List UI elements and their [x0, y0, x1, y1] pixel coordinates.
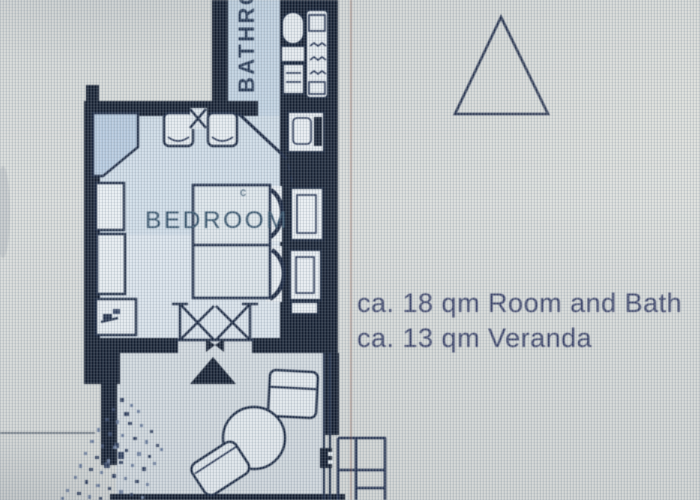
closet-upper [291, 188, 323, 240]
floor-plan-photo: BATHRO BEDROOM c ca. 18 qm Room and Bath… [0, 0, 700, 500]
seat-left [164, 113, 193, 146]
floor-plan-svg: BATHRO BEDROOM c ca. 18 qm Room and Bath… [0, 0, 700, 500]
sink-box [96, 299, 136, 335]
bedroom-label: BEDROOM [145, 207, 289, 234]
side-table-x-icon [190, 108, 207, 129]
washbasin-icon [288, 112, 324, 152]
window-grid-symbol [338, 438, 386, 500]
bottom-edge-wall [110, 494, 345, 500]
area-note-line2: ca. 13 qm Veranda [357, 323, 593, 353]
area-note-line1: ca. 18 qm Room and Bath [357, 288, 682, 318]
shelf-unit-upper [96, 183, 124, 230]
bathtub-icon [306, 10, 328, 98]
bathroom-label: BATHRO [234, 0, 259, 93]
bed [193, 185, 270, 298]
closet-lower [290, 250, 321, 300]
bottom-wall-right [252, 338, 338, 353]
railing-post [320, 448, 333, 468]
shelf-unit-lower [97, 234, 125, 294]
bed-mark-label: c [240, 185, 246, 199]
toilet-icon [281, 12, 305, 62]
photo-smudge [0, 166, 10, 258]
bidet-icon [283, 64, 304, 94]
veranda-right-wall [325, 353, 339, 435]
bathroom-doorway [258, 101, 280, 116]
entry-door-dash [291, 176, 292, 182]
shelf-niche [291, 302, 318, 314]
bathroom-left-wall [212, 0, 228, 101]
top-wall-stub [86, 85, 99, 103]
seat-right [208, 113, 237, 146]
veranda-chair-upper [268, 370, 318, 418]
triangle-symbol [455, 17, 548, 114]
